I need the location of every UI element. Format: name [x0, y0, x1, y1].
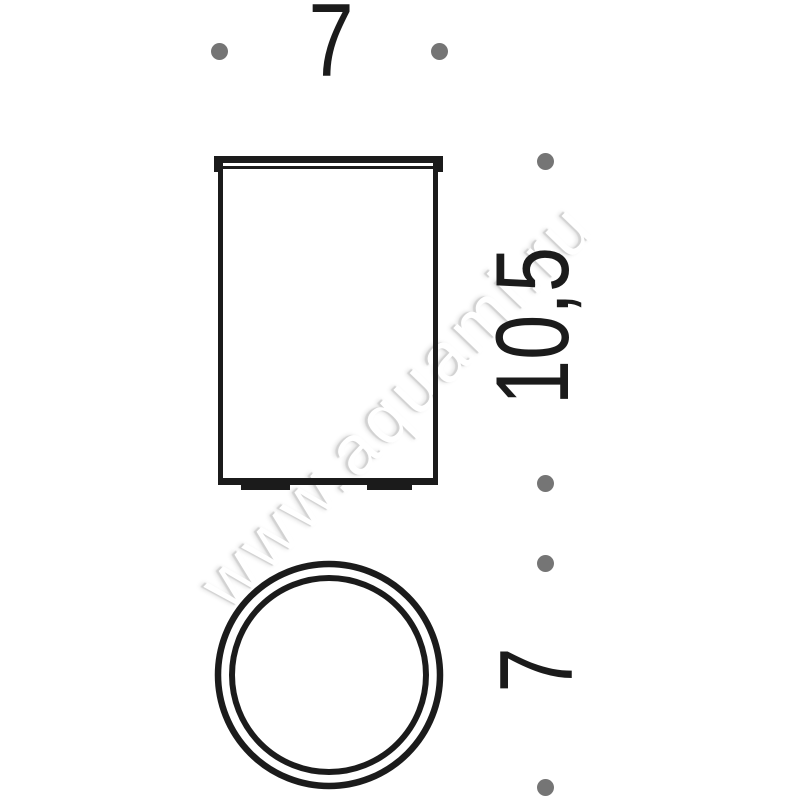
diameter-dimension-dot-bottom [537, 779, 554, 796]
height-dimension-dot-top [537, 153, 554, 170]
height-dimension-dot-bottom [537, 475, 554, 492]
width-dimension-label: 7 [276, 0, 385, 96]
diameter-dimension-label: 7 [482, 615, 592, 724]
width-dimension-dot-right [431, 43, 448, 60]
top-view-outer-circle [218, 564, 440, 786]
front-view-left-foot [241, 484, 290, 490]
front-view-rim-right-lip [438, 156, 443, 172]
front-view-right-foot [367, 484, 412, 490]
drawing-canvas: www.aquami.ru 7 10,5 7 [0, 0, 800, 800]
diameter-dimension-dot-top [537, 555, 554, 572]
height-dimension-label: 10,5 [478, 209, 588, 443]
top-view-inner-circle [232, 578, 426, 772]
top-view-circle [209, 555, 449, 795]
front-view-outline [218, 157, 438, 485]
width-dimension-dot-left [211, 43, 228, 60]
